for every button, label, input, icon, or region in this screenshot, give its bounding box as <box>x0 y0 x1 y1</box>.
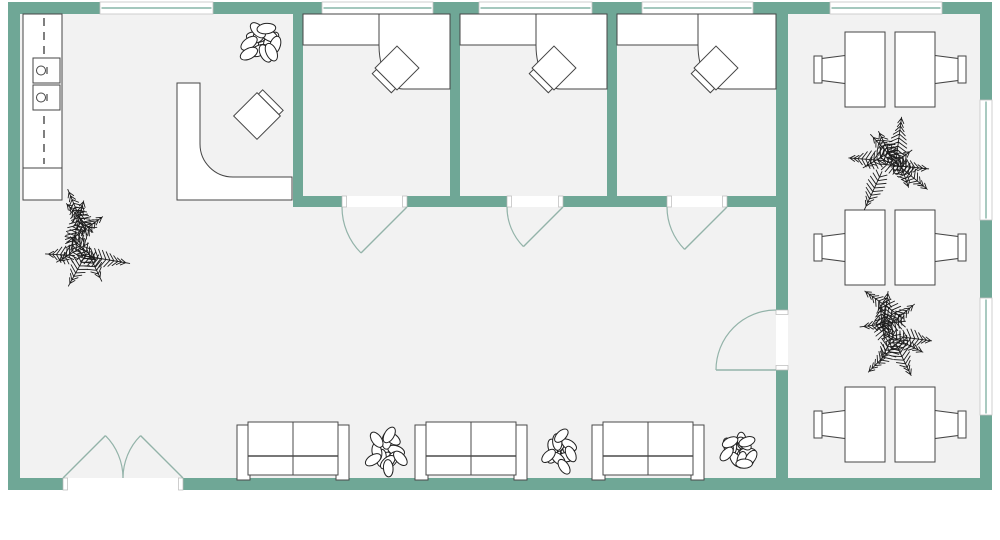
floorplan-svg <box>0 0 1000 540</box>
dining-chair-seat <box>935 411 958 439</box>
sofa-1 <box>237 422 349 480</box>
exterior-wall-right <box>980 2 992 490</box>
leaf <box>736 459 753 469</box>
sofa-2 <box>415 422 527 480</box>
cafe-door-opening <box>776 310 788 370</box>
appliance-knob <box>37 93 46 102</box>
dining-chair-back <box>814 234 822 261</box>
door-jamb <box>403 196 408 207</box>
dining-chair-back <box>814 411 822 438</box>
dining-table <box>895 210 935 285</box>
door-jamb <box>63 478 68 490</box>
dining-chair-back <box>814 56 822 83</box>
door-jamb <box>342 196 347 207</box>
window-right-2 <box>980 298 992 415</box>
office-door-opening-1 <box>342 196 407 207</box>
dining-table <box>895 32 935 107</box>
kitchen-counter <box>23 14 62 200</box>
door-jamb <box>723 196 728 207</box>
dining-table <box>895 387 935 462</box>
office-door-opening-2 <box>507 196 563 207</box>
dining-chair-back <box>958 411 966 438</box>
dining-chair-seat <box>822 411 845 439</box>
window-top-5 <box>830 2 942 14</box>
cafe-divider-wall <box>776 14 788 478</box>
dining-chair-back <box>958 56 966 83</box>
window-top-1 <box>100 2 213 14</box>
office-wall-left <box>293 14 303 207</box>
door-jamb <box>776 366 788 371</box>
office-wall-1-2 <box>450 14 460 207</box>
dining-table <box>845 32 885 107</box>
office-door-opening-3 <box>667 196 727 207</box>
dining-chair-back <box>958 234 966 261</box>
door-jamb <box>507 196 512 207</box>
dining-chair-seat <box>822 234 845 262</box>
exterior-wall-left <box>8 2 20 490</box>
door-jamb <box>776 310 788 315</box>
floorplan-canvas <box>0 0 1000 540</box>
window-top-2 <box>322 2 433 14</box>
base-cabinet <box>23 168 62 200</box>
dining-table <box>845 387 885 462</box>
window-top-3 <box>479 2 592 14</box>
dining-chair-seat <box>935 56 958 84</box>
appliance-knob <box>37 66 46 75</box>
office-wall-2-3 <box>607 14 617 207</box>
entry-opening <box>63 478 183 490</box>
window-right-1 <box>980 100 992 220</box>
door-jamb <box>667 196 672 207</box>
dining-chair-seat <box>822 56 845 84</box>
door-jamb <box>179 478 184 490</box>
window-top-4 <box>642 2 753 14</box>
dining-table <box>845 210 885 285</box>
dining-chair-seat <box>935 234 958 262</box>
door-jamb <box>559 196 564 207</box>
sofa-3 <box>592 422 704 480</box>
